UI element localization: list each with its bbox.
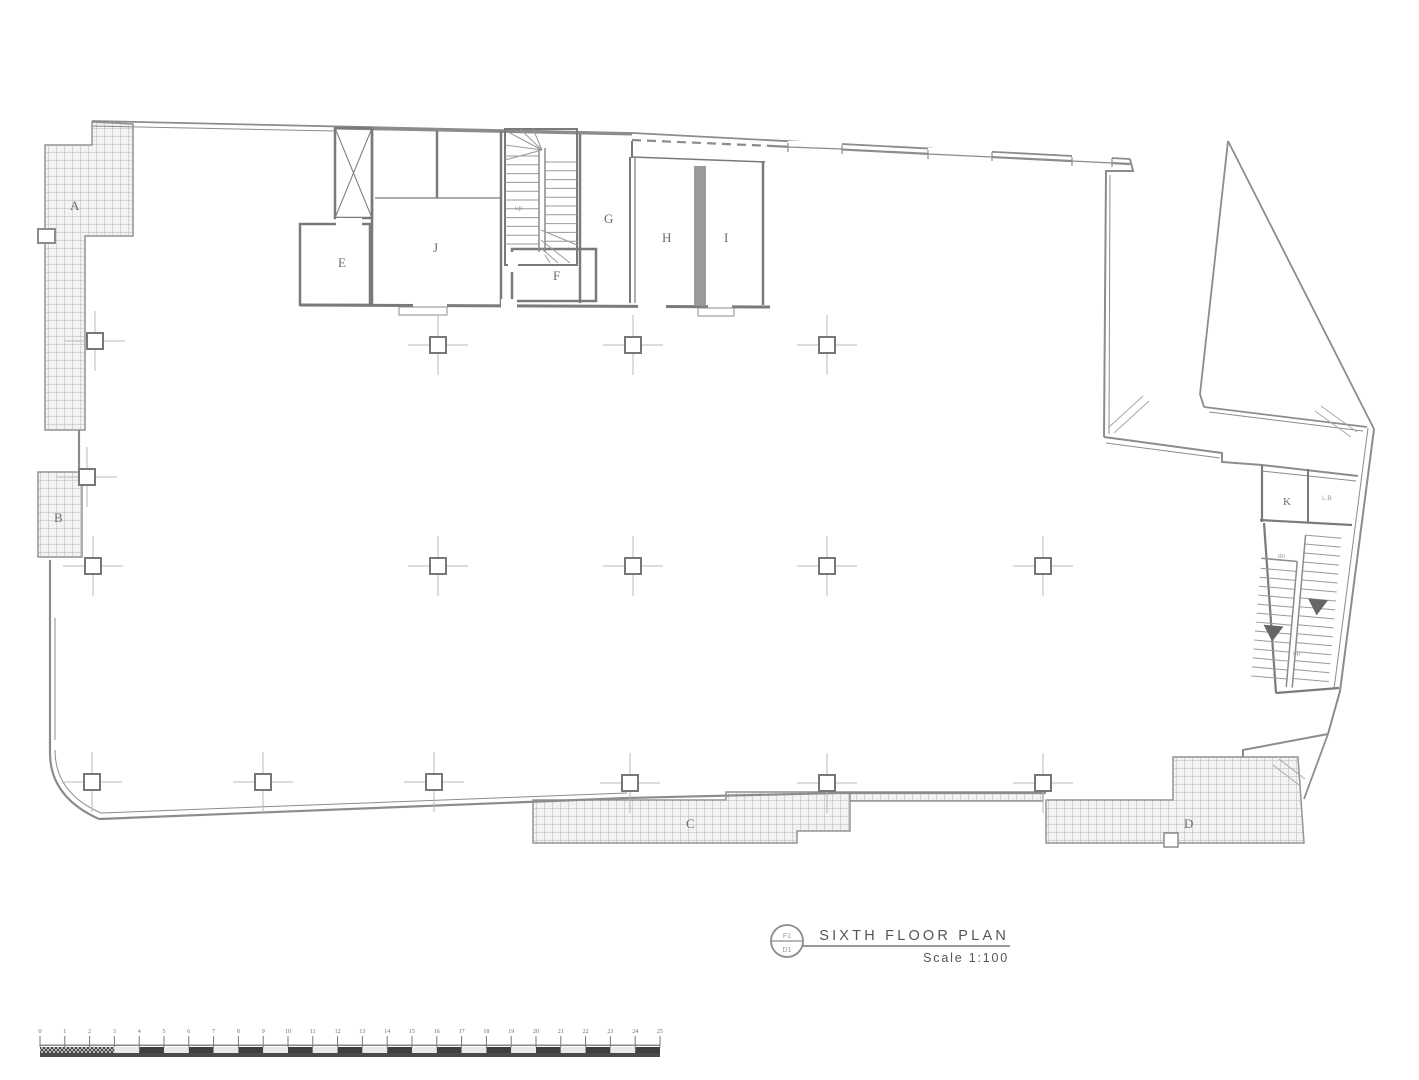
scale-bar-tick-label: 15 bbox=[409, 1029, 415, 1035]
column-marker bbox=[819, 337, 835, 353]
stair2-tread bbox=[1298, 625, 1334, 628]
k-top-wall bbox=[1262, 465, 1358, 476]
lift-x-brace bbox=[335, 128, 372, 218]
stair2-tread bbox=[1257, 613, 1293, 616]
scale-bar-segment bbox=[164, 1047, 189, 1053]
stair2-tread bbox=[1295, 661, 1331, 664]
column-marker bbox=[79, 469, 95, 485]
column-marker bbox=[426, 774, 442, 790]
terrace-d-door bbox=[1164, 833, 1178, 847]
scale-bar-segment bbox=[263, 1047, 288, 1053]
scale-bar-segment bbox=[437, 1047, 462, 1053]
scale-bar-base bbox=[40, 1053, 660, 1057]
label-stair1-up: up bbox=[515, 205, 523, 212]
scale-bar: 0123456789101112131415161718192021222324… bbox=[39, 1029, 664, 1057]
wedge-left-wall bbox=[1200, 141, 1228, 407]
stair2-tread bbox=[1301, 589, 1337, 592]
scale-bar-top-line bbox=[40, 1045, 660, 1047]
column-marker bbox=[430, 337, 446, 353]
window-gap-1 bbox=[788, 141, 842, 152]
stair2-tread bbox=[1253, 649, 1289, 652]
scale-bar-segment bbox=[511, 1047, 536, 1053]
floor-plan-drawing: A B C D E F G H I J K L.B up dn up F1 D1… bbox=[0, 0, 1419, 1080]
stair2-tread bbox=[1303, 562, 1339, 565]
scale-bar-tick-label: 21 bbox=[558, 1029, 564, 1035]
label-room-k: K bbox=[1283, 496, 1291, 508]
title-block: F1 D1 SIXTH FLOOR PLAN Scale 1:100 bbox=[771, 925, 1010, 965]
column-marker bbox=[625, 558, 641, 574]
scale-bar-segment bbox=[635, 1047, 660, 1053]
ref-circle-top-text: F1 bbox=[783, 933, 791, 940]
label-room-i: I bbox=[724, 230, 728, 245]
drawing-scale: Scale 1:100 bbox=[923, 951, 1009, 965]
core-south-door-gap-2 bbox=[501, 299, 517, 312]
stair1-divider bbox=[539, 148, 545, 252]
sliding-door-symbol-2 bbox=[698, 308, 734, 316]
label-stair2-dn: dn bbox=[1278, 553, 1286, 560]
room-e-door-gap bbox=[336, 218, 362, 230]
scale-bar-tick-label: 17 bbox=[459, 1029, 465, 1035]
stair2-tread bbox=[1294, 670, 1330, 673]
label-room-e: E bbox=[338, 255, 346, 270]
scale-bar-tick-label: 8 bbox=[237, 1029, 240, 1035]
scale-bar-tick-label: 24 bbox=[632, 1029, 638, 1035]
scale-bar-segment bbox=[313, 1047, 338, 1053]
hi-north-wall bbox=[632, 157, 765, 162]
column-marker bbox=[1035, 775, 1051, 791]
top-wall-inner-dashed bbox=[632, 140, 772, 146]
label-stair2-up: up bbox=[1293, 650, 1301, 657]
stair2-tread bbox=[1306, 535, 1342, 538]
scale-bar-tick-label: 13 bbox=[359, 1029, 365, 1035]
scale-bar-tick-label: 0 bbox=[39, 1029, 42, 1035]
scale-bar-segment bbox=[189, 1047, 214, 1053]
label-room-h: H bbox=[662, 230, 671, 245]
scale-bar-tick-label: 18 bbox=[483, 1029, 489, 1035]
scale-bar-tick-label: 23 bbox=[607, 1029, 613, 1035]
stair2-tread bbox=[1251, 676, 1287, 679]
room-e-walls bbox=[300, 224, 370, 305]
column-grid bbox=[57, 311, 1073, 813]
label-terrace-d: D bbox=[1184, 816, 1193, 831]
west-wall-opening bbox=[38, 229, 55, 243]
scale-bar-tick-label: 22 bbox=[583, 1029, 589, 1035]
stair2-west-wall bbox=[1264, 523, 1276, 693]
scale-bar-segment bbox=[462, 1047, 487, 1053]
scale-bar-segment bbox=[338, 1047, 363, 1053]
scale-bar-segment bbox=[387, 1047, 412, 1053]
stair2-tread bbox=[1253, 658, 1289, 661]
column-marker bbox=[1035, 558, 1051, 574]
scale-bar-tick-label: 4 bbox=[138, 1029, 141, 1035]
stair2 bbox=[1250, 531, 1341, 690]
wedge-bottom-wall bbox=[1204, 407, 1367, 427]
sliding-door-symbol-1 bbox=[399, 307, 447, 315]
terrace-d-hatch bbox=[1046, 757, 1304, 843]
label-terrace-c: C bbox=[686, 816, 695, 831]
stair2-tread bbox=[1260, 568, 1296, 571]
scale-bar-segment bbox=[536, 1047, 561, 1053]
column-marker bbox=[819, 775, 835, 791]
room-f-door-gap bbox=[508, 252, 518, 272]
stair2-tread bbox=[1293, 679, 1329, 682]
stair2-tread bbox=[1299, 616, 1335, 619]
scale-bar-segment bbox=[610, 1047, 635, 1053]
stair2-treads bbox=[1251, 531, 1341, 682]
terrace-a-hatch bbox=[45, 122, 133, 430]
wedge-right-wall bbox=[1228, 141, 1374, 429]
stair2-tread bbox=[1258, 595, 1294, 598]
stair2-tread bbox=[1252, 667, 1288, 670]
stair2-tread bbox=[1295, 652, 1331, 655]
column-marker bbox=[430, 558, 446, 574]
scale-bar-segment bbox=[412, 1047, 437, 1053]
scale-bar-tick-label: 7 bbox=[212, 1029, 215, 1035]
scale-bar-segment bbox=[90, 1047, 115, 1053]
floor-plan-page: A B C D E F G H I J K L.B up dn up F1 D1… bbox=[0, 0, 1419, 1080]
scale-bar-tick-label: 9 bbox=[262, 1029, 265, 1035]
door-openings bbox=[38, 218, 1178, 847]
label-room-f: F bbox=[553, 268, 560, 283]
notch-left-wall bbox=[1104, 159, 1133, 437]
stair2-tread bbox=[1297, 634, 1333, 637]
stair2-tread bbox=[1304, 553, 1340, 556]
label-lift-room: L.B bbox=[1322, 495, 1332, 502]
scale-bar-segment bbox=[586, 1047, 611, 1053]
notch-bottom-wall bbox=[1104, 437, 1262, 465]
core-south-wall bbox=[300, 305, 770, 307]
d-upper-wall bbox=[1243, 734, 1328, 757]
scale-bar-segment bbox=[139, 1047, 164, 1053]
scale-bar-tick-label: 16 bbox=[434, 1029, 440, 1035]
label-room-g: G bbox=[604, 211, 613, 226]
scale-bar-segment bbox=[561, 1047, 586, 1053]
stair2-tread bbox=[1256, 622, 1292, 625]
scale-bar-tick-label: 20 bbox=[533, 1029, 539, 1035]
room-labels: A B C D E F G H I J K L.B up dn up bbox=[54, 198, 1332, 831]
scale-bar-tick-label: 2 bbox=[88, 1029, 91, 1035]
scale-bar-tick-label: 3 bbox=[113, 1029, 116, 1035]
room-k-south-wall bbox=[1260, 520, 1352, 525]
scale-bar-tick-label: 19 bbox=[508, 1029, 514, 1035]
scale-bar-tick-label: 5 bbox=[163, 1029, 166, 1035]
top-wall-windows bbox=[788, 141, 1112, 167]
hi-party-wall bbox=[694, 166, 706, 305]
stair2-tread bbox=[1305, 544, 1341, 547]
scale-bar-tick-label: 10 bbox=[285, 1029, 291, 1035]
scale-bar-tick-label: 25 bbox=[657, 1029, 663, 1035]
column-marker bbox=[625, 337, 641, 353]
label-room-j: J bbox=[433, 240, 438, 255]
scale-bar-segment bbox=[238, 1047, 263, 1053]
stair2-tread bbox=[1257, 604, 1293, 607]
outer-walls bbox=[50, 121, 1374, 819]
column-marker bbox=[84, 774, 100, 790]
east-wall-inner bbox=[1334, 428, 1368, 689]
column-marker bbox=[622, 775, 638, 791]
stair2-tread bbox=[1260, 577, 1296, 580]
scale-bar-segment bbox=[486, 1047, 511, 1053]
scale-bar-segment bbox=[288, 1047, 313, 1053]
scale-bar-tick-label: 12 bbox=[335, 1029, 341, 1035]
stair1-winders bbox=[505, 129, 577, 263]
wedge-bottom-wall-inner bbox=[1209, 412, 1363, 431]
scale-bar-tick-label: 1 bbox=[63, 1029, 66, 1035]
label-terrace-a: A bbox=[70, 198, 80, 213]
stair2-south-wall bbox=[1276, 688, 1339, 693]
scale-bar-tick-label: 6 bbox=[187, 1029, 190, 1035]
ref-circle-bottom-text: D1 bbox=[783, 947, 792, 954]
column-marker bbox=[255, 774, 271, 790]
window-gap-3 bbox=[1072, 155, 1112, 166]
drawing-title: SIXTH FLOOR PLAN bbox=[819, 928, 1009, 944]
d-upper-slant-wall bbox=[1304, 734, 1328, 799]
scale-bar-segment bbox=[40, 1047, 65, 1053]
scale-bar-segment bbox=[362, 1047, 387, 1053]
stair2-tread bbox=[1302, 580, 1338, 583]
core-south-door-gap-3 bbox=[638, 300, 666, 313]
label-terrace-b: B bbox=[54, 510, 63, 525]
stair1-treads bbox=[505, 156, 577, 244]
notch-left-wall-inner bbox=[1109, 175, 1110, 434]
scale-bar-tick-label: 11 bbox=[310, 1029, 316, 1035]
stair2-tread bbox=[1302, 571, 1338, 574]
scale-bar-segment bbox=[114, 1047, 139, 1053]
window-gap-2 bbox=[928, 148, 992, 159]
column-marker bbox=[87, 333, 103, 349]
scale-bar-segment bbox=[65, 1047, 90, 1053]
stair2-tread bbox=[1296, 643, 1332, 646]
scale-bar-segment bbox=[214, 1047, 239, 1053]
stair2-tread bbox=[1259, 586, 1295, 589]
column-marker bbox=[85, 558, 101, 574]
scale-bar-tick-label: 14 bbox=[384, 1029, 390, 1035]
column-marker bbox=[819, 558, 835, 574]
